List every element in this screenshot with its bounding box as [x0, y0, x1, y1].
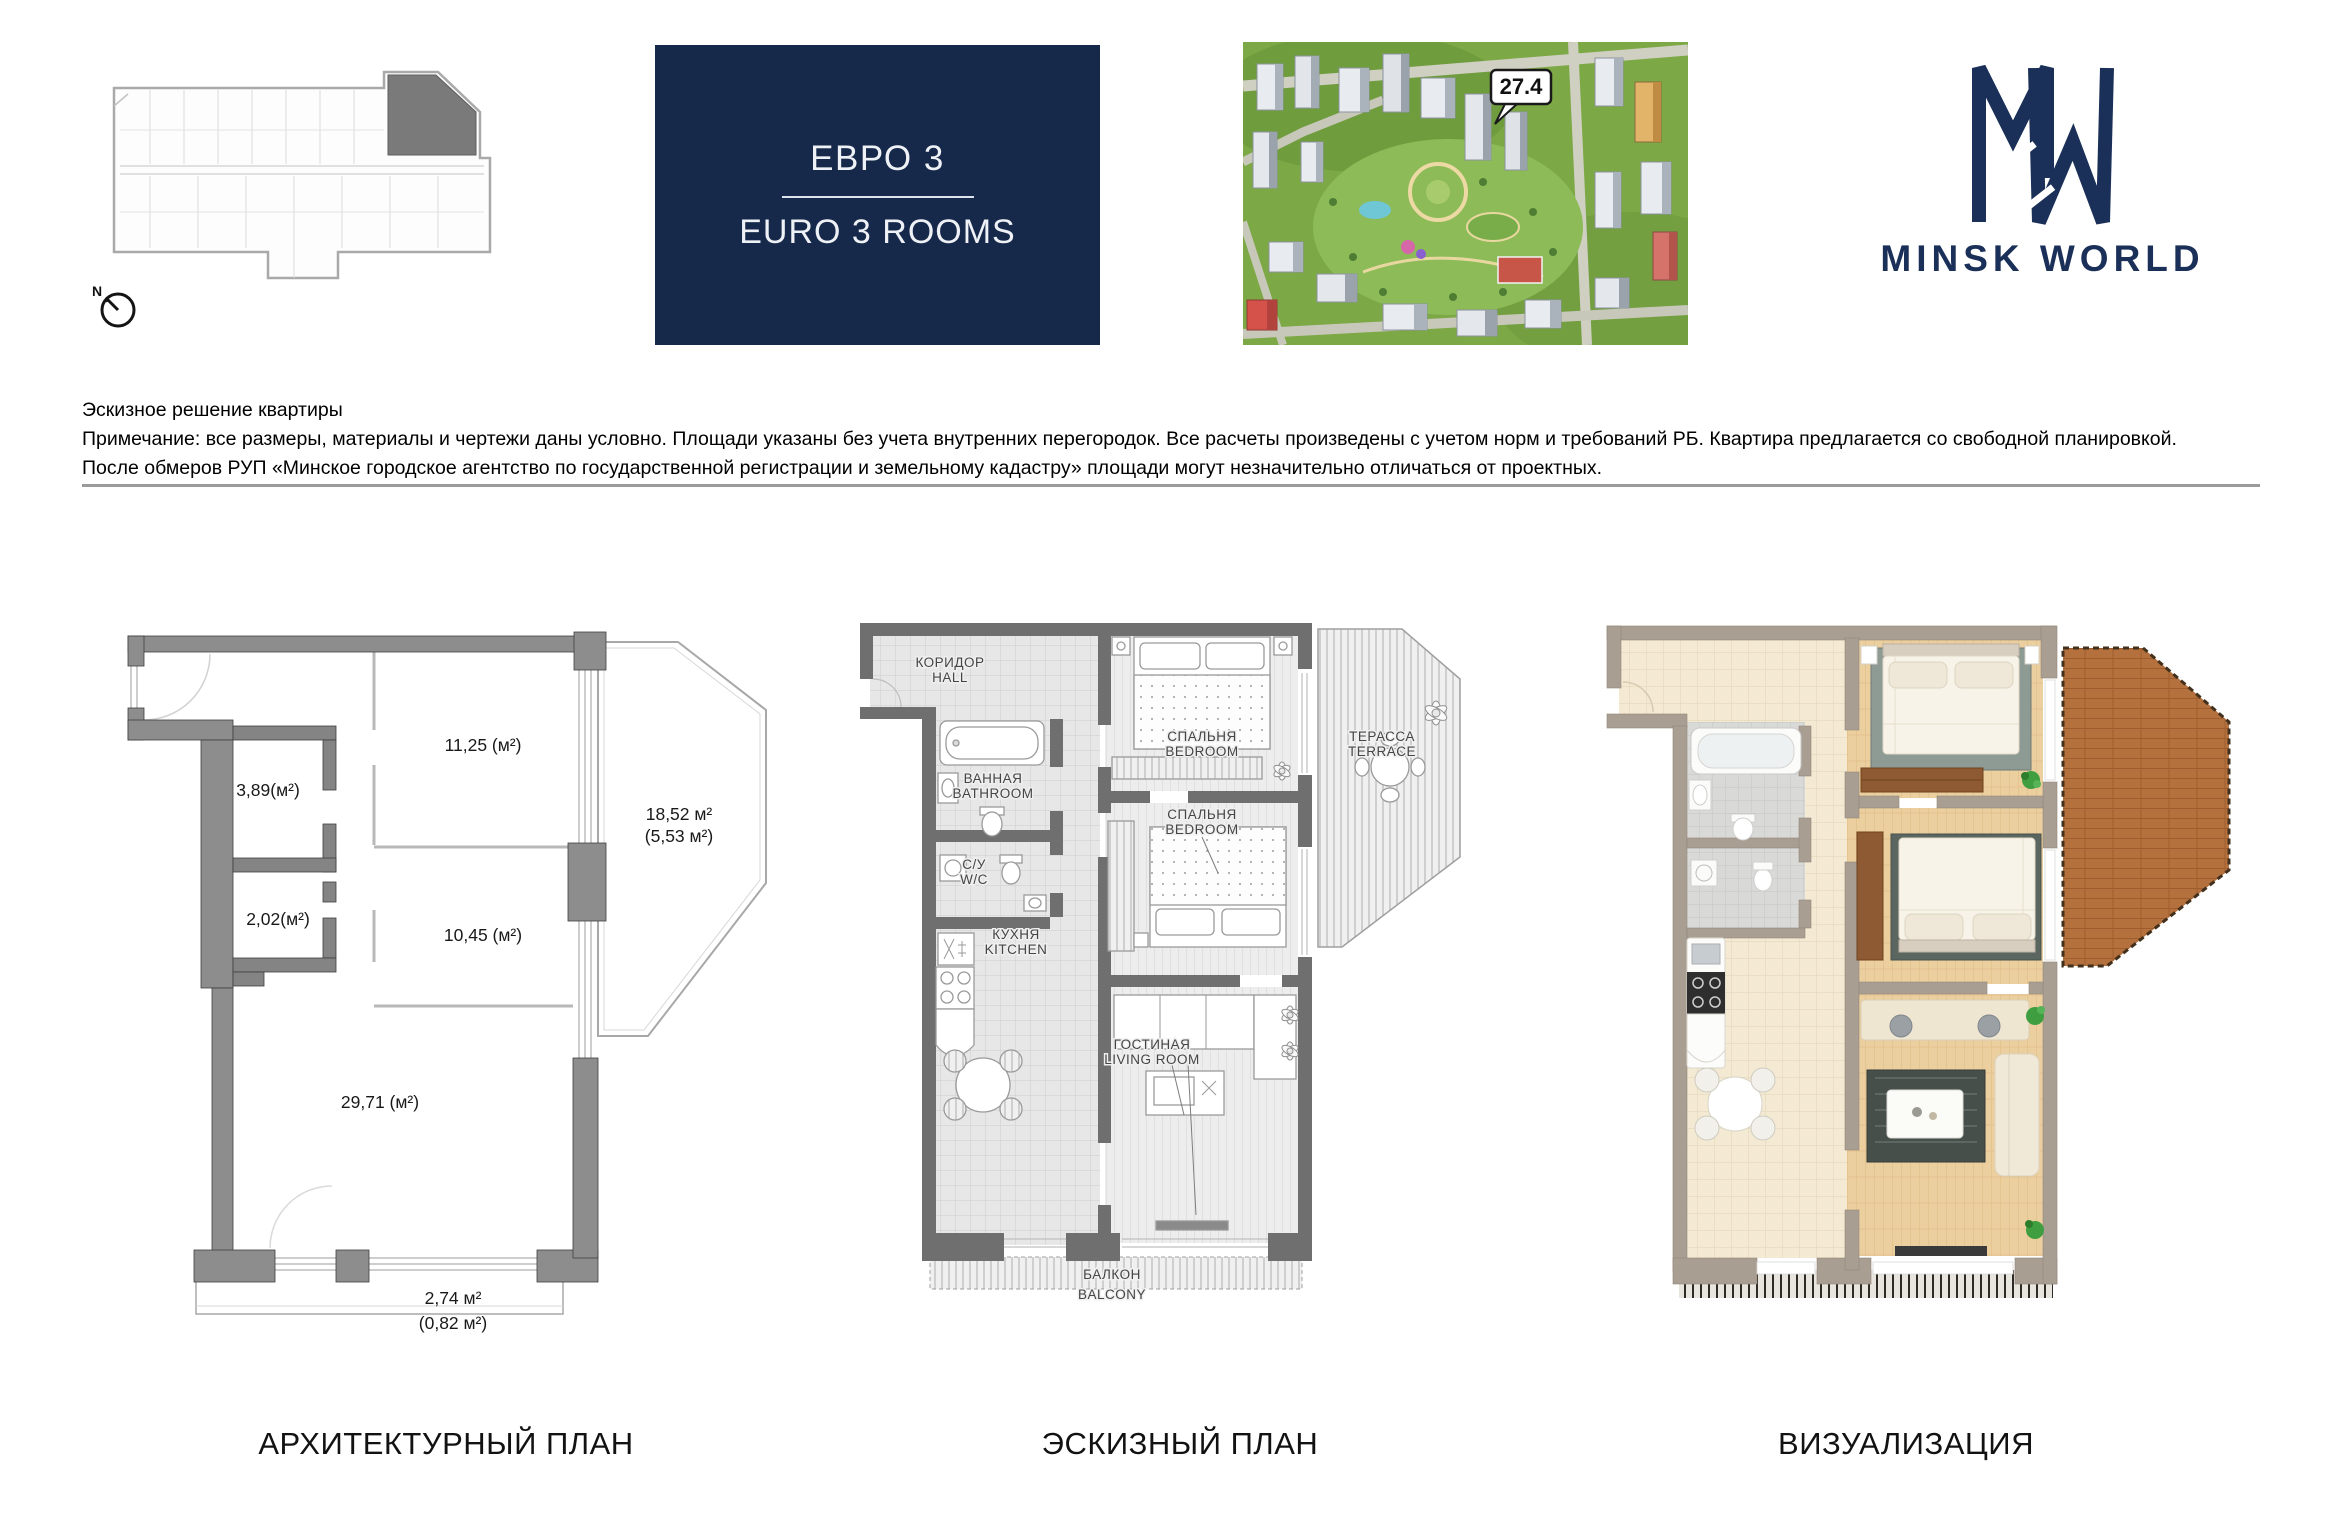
area-label-room-a: 11,25 (м²): [445, 735, 522, 755]
room-label-bathroom-en: BATHROOM: [953, 786, 1034, 801]
disclaimer-line-1: Эскизное решение квартиры: [82, 396, 2277, 425]
compass-label: N: [92, 283, 102, 299]
caption-sketch-plan: ЭСКИЗНЫЙ ПЛАН: [920, 1426, 1440, 1462]
visualization-render: [1595, 618, 2235, 1308]
area-label-terrace-reduced: (5,53 м²): [645, 826, 713, 846]
room-label-balcony-ru: БАЛКОН: [1083, 1267, 1141, 1282]
aerial-render: 27.4: [1243, 42, 1688, 345]
room-label-hall-en: HALL: [932, 670, 968, 685]
area-label-storage-a: 3,89(м²): [236, 780, 300, 800]
room-label-bedroom2-ru: СПАЛЬНЯ: [1167, 807, 1236, 822]
section-divider: [82, 484, 2260, 487]
brand-logo-text: MINSK WORLD: [1880, 238, 2204, 280]
area-label-terrace: 18,52 м²: [646, 804, 713, 824]
compass-icon: [102, 294, 134, 326]
floor-locator-plan: N: [88, 42, 520, 342]
room-label-terrace-en: TERRACE: [1348, 744, 1416, 759]
highlighted-unit: [388, 75, 476, 155]
panel-divider: [782, 196, 974, 198]
unit-type-panel: ЕВРО 3 EURO 3 ROOMS: [655, 45, 1100, 345]
room-label-terrace-ru: ТЕРАССА: [1349, 729, 1415, 744]
area-label-living: 29,71 (м²): [341, 1092, 419, 1112]
sketch-plan-drawing: КОРИДОР HALL ВАННАЯ BATHROOM С/У W/C КУХ…: [850, 615, 1470, 1325]
room-label-kitchen-en: KITCHEN: [985, 942, 1048, 957]
unit-type-ru: ЕВРО 3: [810, 139, 945, 179]
area-label-balcony: 2,74 м²: [425, 1288, 482, 1308]
disclaimer: Эскизное решение квартиры Примечание: вс…: [82, 396, 2277, 483]
room-label-hall-ru: КОРИДОР: [915, 655, 984, 670]
room-label-balcony-en: BALCONY: [1078, 1287, 1146, 1302]
brand-logo: MINSK WORLD: [1870, 58, 2215, 318]
disclaimer-line-3: После обмеров РУП «Минское городское аге…: [82, 454, 2277, 483]
area-label-storage-b: 2,02(м²): [246, 909, 310, 929]
disclaimer-line-2: Примечание: все размеры, материалы и чер…: [82, 425, 2277, 454]
apartment-spec-sheet: N ЕВРО 3 EURO 3 ROOMS: [0, 0, 2337, 1526]
room-label-wc-ru: С/У: [962, 857, 986, 872]
mw-monogram-icon: [1943, 58, 2143, 228]
room-label-wc-en: W/C: [960, 872, 988, 887]
area-label-room-b: 10,45 (м²): [444, 925, 522, 945]
room-label-bedroom1-en: BEDROOM: [1165, 744, 1238, 759]
caption-architectural-plan: АРХИТЕКТУРНЫЙ ПЛАН: [186, 1426, 706, 1462]
room-label-living-en: LIVING ROOM: [1104, 1052, 1200, 1067]
room-label-kitchen-ru: КУХНЯ: [992, 927, 1040, 942]
room-label-bedroom2-en: BEDROOM: [1165, 822, 1238, 837]
room-label-living-ru: ГОСТИНАЯ: [1114, 1037, 1191, 1052]
room-label-bedroom1-ru: СПАЛЬНЯ: [1167, 729, 1236, 744]
area-label-balcony-reduced: (0,82 м²): [419, 1313, 487, 1333]
room-label-bathroom-ru: ВАННАЯ: [964, 771, 1023, 786]
unit-type-en: EURO 3 ROOMS: [739, 213, 1015, 252]
architectural-plan-drawing: 3,89(м²) 2,02(м²) 11,25 (м²) 10,45 (м²) …: [118, 630, 778, 1340]
building-callout-label: 27.4: [1500, 74, 1544, 99]
caption-visualization: ВИЗУАЛИЗАЦИЯ: [1646, 1426, 2166, 1462]
